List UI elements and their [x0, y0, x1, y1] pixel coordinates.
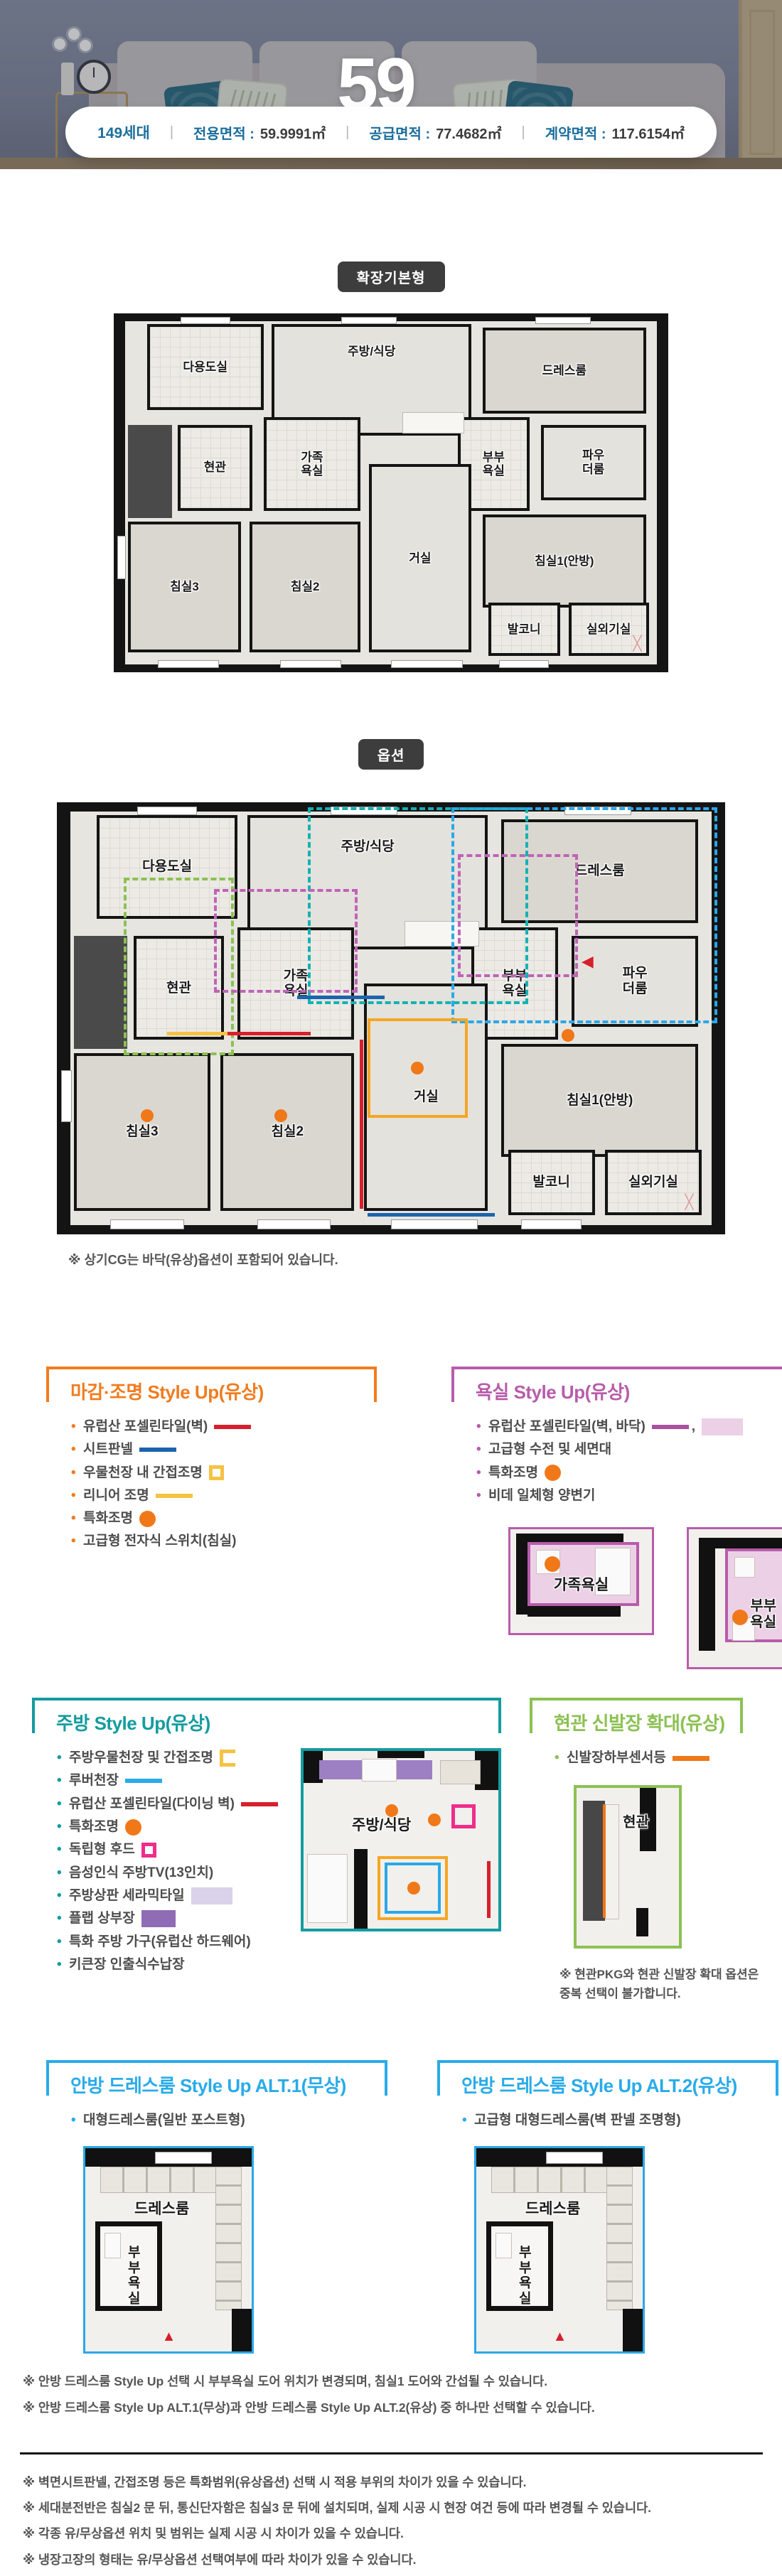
footer-divider: [20, 2452, 763, 2454]
orange-line-marker: [673, 1756, 709, 1761]
window: [521, 1219, 582, 1229]
room-bed2: 침실2: [250, 522, 360, 652]
badge-base-plan: 확장기본형: [338, 262, 445, 292]
note-line: ※ 안방 드레스룸 Style Up 선택 시 부부욕실 도어 위치가 변경되며…: [23, 2372, 782, 2391]
option-item: 대형드레스룸(일반 포스트형): [83, 2109, 387, 2132]
window: [391, 1219, 478, 1229]
special-light-dot: [385, 1804, 398, 1817]
kitchen-island: [402, 412, 465, 433]
special-light-dot: [562, 1029, 574, 1042]
couple-bath-subroom: 부부 욕실: [95, 2221, 162, 2311]
room-bed2: 침실2: [220, 1053, 354, 1211]
section-title-frame: 욕실 Style Up(유상): [451, 1367, 782, 1404]
room-entrance: 현관: [178, 425, 252, 511]
entrance-note: ※ 현관PKG와 현관 신발장 확대 옵션은 중복 선택이 불가합니다.: [559, 1966, 773, 2003]
option-item: 특화조명: [488, 1462, 782, 1484]
supply-area: 공급면적 : 77.4682㎡: [369, 122, 501, 143]
contract-area: 계약면적 : 117.6154㎡: [545, 122, 685, 143]
window: [391, 660, 463, 668]
special-light-dot: [545, 1556, 560, 1572]
yellow-line-marker: [156, 1494, 193, 1498]
shoe-cabinet: [583, 1801, 606, 1921]
exclusive-area: 전용면적 : 59.9991㎡: [193, 122, 326, 143]
sensor-light-line: [603, 1804, 606, 1918]
window: [110, 1219, 183, 1229]
window: [280, 660, 341, 668]
red-line-marker: [214, 1425, 251, 1429]
window: [341, 317, 397, 324]
window: [158, 660, 219, 668]
dressroom-notes: ※ 안방 드레스룸 Style Up 선택 시 부부욕실 도어 위치가 변경되며…: [23, 2372, 782, 2417]
note-line: ※ 안방 드레스룸 Style Up ALT.1(무상)과 안방 드레스룸 St…: [23, 2398, 782, 2417]
note-line: ※ 벽면시트판넬, 간접조명 등은 특화범위(유상옵션) 선택 시 적용 부위의…: [23, 2473, 782, 2491]
option-item: 특화조명: [83, 1507, 377, 1530]
room-living: 거실: [369, 464, 471, 652]
option-item: 플랩 상부장: [69, 1907, 282, 1930]
section-kitchen: 주방 Style Up(유상) 주방우물천장 및 간접조명 루버천장 유럽산 포…: [32, 1698, 501, 2003]
floorplan-option: 다용도실 주방/식당 드레스룸 현관 가족 욕실 부부 욕실 파우 더룸 침실1…: [57, 802, 725, 1234]
window: [117, 536, 126, 579]
note-line: ※ 각종 유/무상옵션 위치 및 범위는 실제 시공 시 차이가 있을 수 있습…: [23, 2524, 782, 2543]
room-balcony: 발코니: [488, 603, 560, 657]
section-title: 주방 Style Up(유상): [56, 1709, 501, 1735]
couple-bath-image: 부부 욕실: [687, 1527, 782, 1669]
option-item: 유럽산 포셀린타일(벽): [83, 1416, 377, 1438]
window: [257, 1219, 331, 1229]
orange-dot-marker: [545, 1465, 561, 1481]
section-finish-lighting: 마감·조명 Style Up(유상) 유럽산 포셀린타일(벽) 시트판넬 우물천…: [46, 1367, 377, 1669]
yellow-bracket-marker: [220, 1750, 235, 1767]
orange-dot-marker: [125, 1819, 141, 1836]
option-item: 루버천장: [69, 1769, 282, 1792]
section-title-frame: 마감·조명 Style Up(유상): [46, 1367, 377, 1404]
room-bed3: 침실3: [74, 1053, 211, 1211]
door-change-marker: ◀: [582, 954, 594, 969]
divider: |: [170, 124, 173, 141]
special-light-dot: [428, 1814, 441, 1826]
purple-swatch-marker: [141, 1910, 176, 1927]
option-item: 주방상판 세라믹타일: [69, 1885, 282, 1907]
family-bath-image: 가족욕실: [508, 1527, 654, 1635]
linear-light-line: [167, 1032, 227, 1035]
section-dressroom-alt1: 안방 드레스룸 Style Up ALT.1(무상) 대형드레스룸(일반 포스트…: [46, 2060, 387, 2354]
option-item: 유럽산 포셀린타일(벽, 바닥),: [488, 1416, 782, 1438]
section-title-frame: 주방 Style Up(유상): [32, 1698, 501, 1735]
window: [137, 807, 198, 815]
option-item: 키큰장 인출식수납장: [69, 1953, 282, 1976]
special-light-dot: [274, 1109, 287, 1122]
special-light-dot: [411, 1062, 424, 1074]
note-line: ※ 냉장고장의 형태는 유/무상옵션 선택여부에 따라 차이가 있을 수 있습니…: [23, 2550, 782, 2569]
door-change-marker: ▲: [162, 2329, 176, 2344]
option-item: 독립형 후드: [69, 1838, 282, 1861]
room-bed1: 침실1(안방): [483, 514, 646, 608]
porcelain-tile-line: [360, 1040, 363, 1208]
cabinet-face: [605, 1804, 618, 1919]
entrance-image: 현관: [574, 1785, 682, 1949]
room-utility: 다용도실: [147, 324, 264, 410]
red-line-marker: [241, 1802, 278, 1806]
hood-marker: [451, 1804, 476, 1828]
option-item: 리니어 조명: [83, 1484, 377, 1507]
divider: |: [346, 124, 349, 141]
closet-block: [74, 936, 127, 1048]
section-title: 현관 신발장 확대(유상): [554, 1709, 743, 1735]
closet-block: [128, 425, 172, 518]
couple-bath-subroom: 부부 욕실: [486, 2221, 553, 2311]
section-title: 마감·조명 Style Up(유상): [70, 1378, 377, 1404]
special-light-dot: [732, 1610, 748, 1625]
room-bed1: 침실1(안방): [501, 1044, 698, 1156]
section-title-frame: 현관 신발장 확대(유상): [530, 1698, 743, 1735]
dressroom-alt2-image: 드레스룸 부부 욕실 ▲: [474, 2146, 645, 2354]
overlay-couple-bath-zone: [458, 854, 578, 977]
window: [535, 317, 591, 324]
room-outdoor-unit: 실외기실╳: [569, 603, 649, 657]
floorplan-base: 다용도실 주방/식당 드레스룸 현관 가족 욕실 부부 욕실 파우 더룸 침실1…: [114, 313, 668, 672]
special-light-dot: [141, 1109, 154, 1122]
option-item: 고급형 대형드레스룸(벽 판넬 조명형): [474, 2109, 778, 2132]
room-balcony: 발코니: [508, 1150, 595, 1214]
divider: |: [521, 124, 525, 141]
overlay-family-bath-zone: [214, 889, 358, 993]
sheet-panel-line: [368, 1213, 495, 1217]
option-item: 특화 주방 가구(유럽산 하드웨어): [69, 1931, 282, 1953]
window: [181, 317, 230, 324]
lavender-swatch-marker: [191, 1887, 232, 1904]
option-item: 시트판넬: [83, 1438, 377, 1461]
blue-line-marker: [139, 1448, 176, 1452]
households: 149세대: [97, 122, 150, 143]
section-dressroom-alt2: 안방 드레스룸 Style Up ALT.2(유상) 고급형 대형드레스룸(벽 …: [437, 2060, 778, 2354]
section-title: 욕실 Style Up(유상): [476, 1378, 782, 1404]
porcelain-tile-line: [227, 1032, 311, 1035]
orange-dot-marker: [139, 1511, 156, 1527]
option-item: 우물천장 내 간접조명: [83, 1462, 377, 1484]
option-item: 비데 일체형 양변기: [488, 1484, 782, 1507]
room-dressroom: 드레스룸: [483, 328, 646, 414]
purple-line-marker: [652, 1425, 689, 1429]
kitchen-image: 주방/식당: [301, 1748, 501, 1931]
option-item: 신발장하부센서등: [567, 1747, 743, 1769]
option-item: 특화조명: [69, 1816, 282, 1838]
pink-square-marker: [141, 1843, 156, 1858]
pink-swatch-marker: [702, 1418, 743, 1435]
room-powder: 파우 더룸: [541, 425, 646, 500]
section-title-frame: 안방 드레스룸 Style Up ALT.1(무상): [46, 2060, 387, 2098]
tile-line-vertical: [487, 1861, 491, 1918]
section-title: 안방 드레스룸 Style Up ALT.1(무상): [70, 2071, 387, 2098]
cg-note: ※ 상기CG는 바닥(유상)옵션이 포함되어 있습니다.: [68, 1250, 782, 1268]
room-bed3: 침실3: [128, 522, 242, 652]
section-entrance: 현관 신발장 확대(유상) 신발장하부센서등 현관 ※ 현관PKG와 현관 신발…: [530, 1698, 743, 2003]
option-item: 음성인식 주방TV(13인치): [69, 1862, 282, 1885]
cabinet: [440, 1760, 481, 1785]
skyblue-line-marker: [125, 1779, 162, 1783]
room-outdoor-unit: 실외기실╳: [605, 1150, 702, 1214]
dressroom-alt1-image: 드레스룸 부부 욕실 ▲: [83, 2146, 254, 2354]
section-bath: 욕실 Style Up(유상) 유럽산 포셀린타일(벽, 바닥), 고급형 수전…: [451, 1367, 782, 1669]
window: [499, 660, 549, 668]
option-item: 유럽산 포셀린타일(다이닝 벽): [69, 1793, 282, 1816]
door-change-marker: ▲: [553, 2329, 567, 2344]
window: [61, 1070, 72, 1122]
room-family-bath: 가족 욕실: [264, 417, 361, 510]
option-item: 고급형 수전 및 세면대: [488, 1438, 782, 1461]
option-item: 주방우물천장 및 간접조명: [69, 1747, 282, 1769]
badge-option-plan: 옵션: [358, 739, 424, 770]
yellow-square-marker: [209, 1465, 224, 1480]
section-title-frame: 안방 드레스룸 Style Up ALT.2(유상): [437, 2060, 778, 2098]
area-summary-bar: 149세대 | 전용면적 : 59.9991㎡ | 공급면적 : 77.4682…: [65, 107, 717, 158]
option-item: 고급형 전자식 스위치(침실): [83, 1530, 377, 1553]
ceiling-marker-outer: [377, 1856, 448, 1920]
sheet-panel-line: [297, 996, 384, 999]
section-title: 안방 드레스룸 Style Up ALT.2(유상): [461, 2071, 778, 2098]
footer-notes: ※ 벽면시트판넬, 간접조명 등은 특화범위(유상옵션) 선택 시 적용 부위의…: [23, 2473, 782, 2569]
note-line: ※ 세대분전반은 침실2 문 뒤, 통신단자함은 침실3 문 뒤에 설치되며, …: [23, 2499, 782, 2517]
